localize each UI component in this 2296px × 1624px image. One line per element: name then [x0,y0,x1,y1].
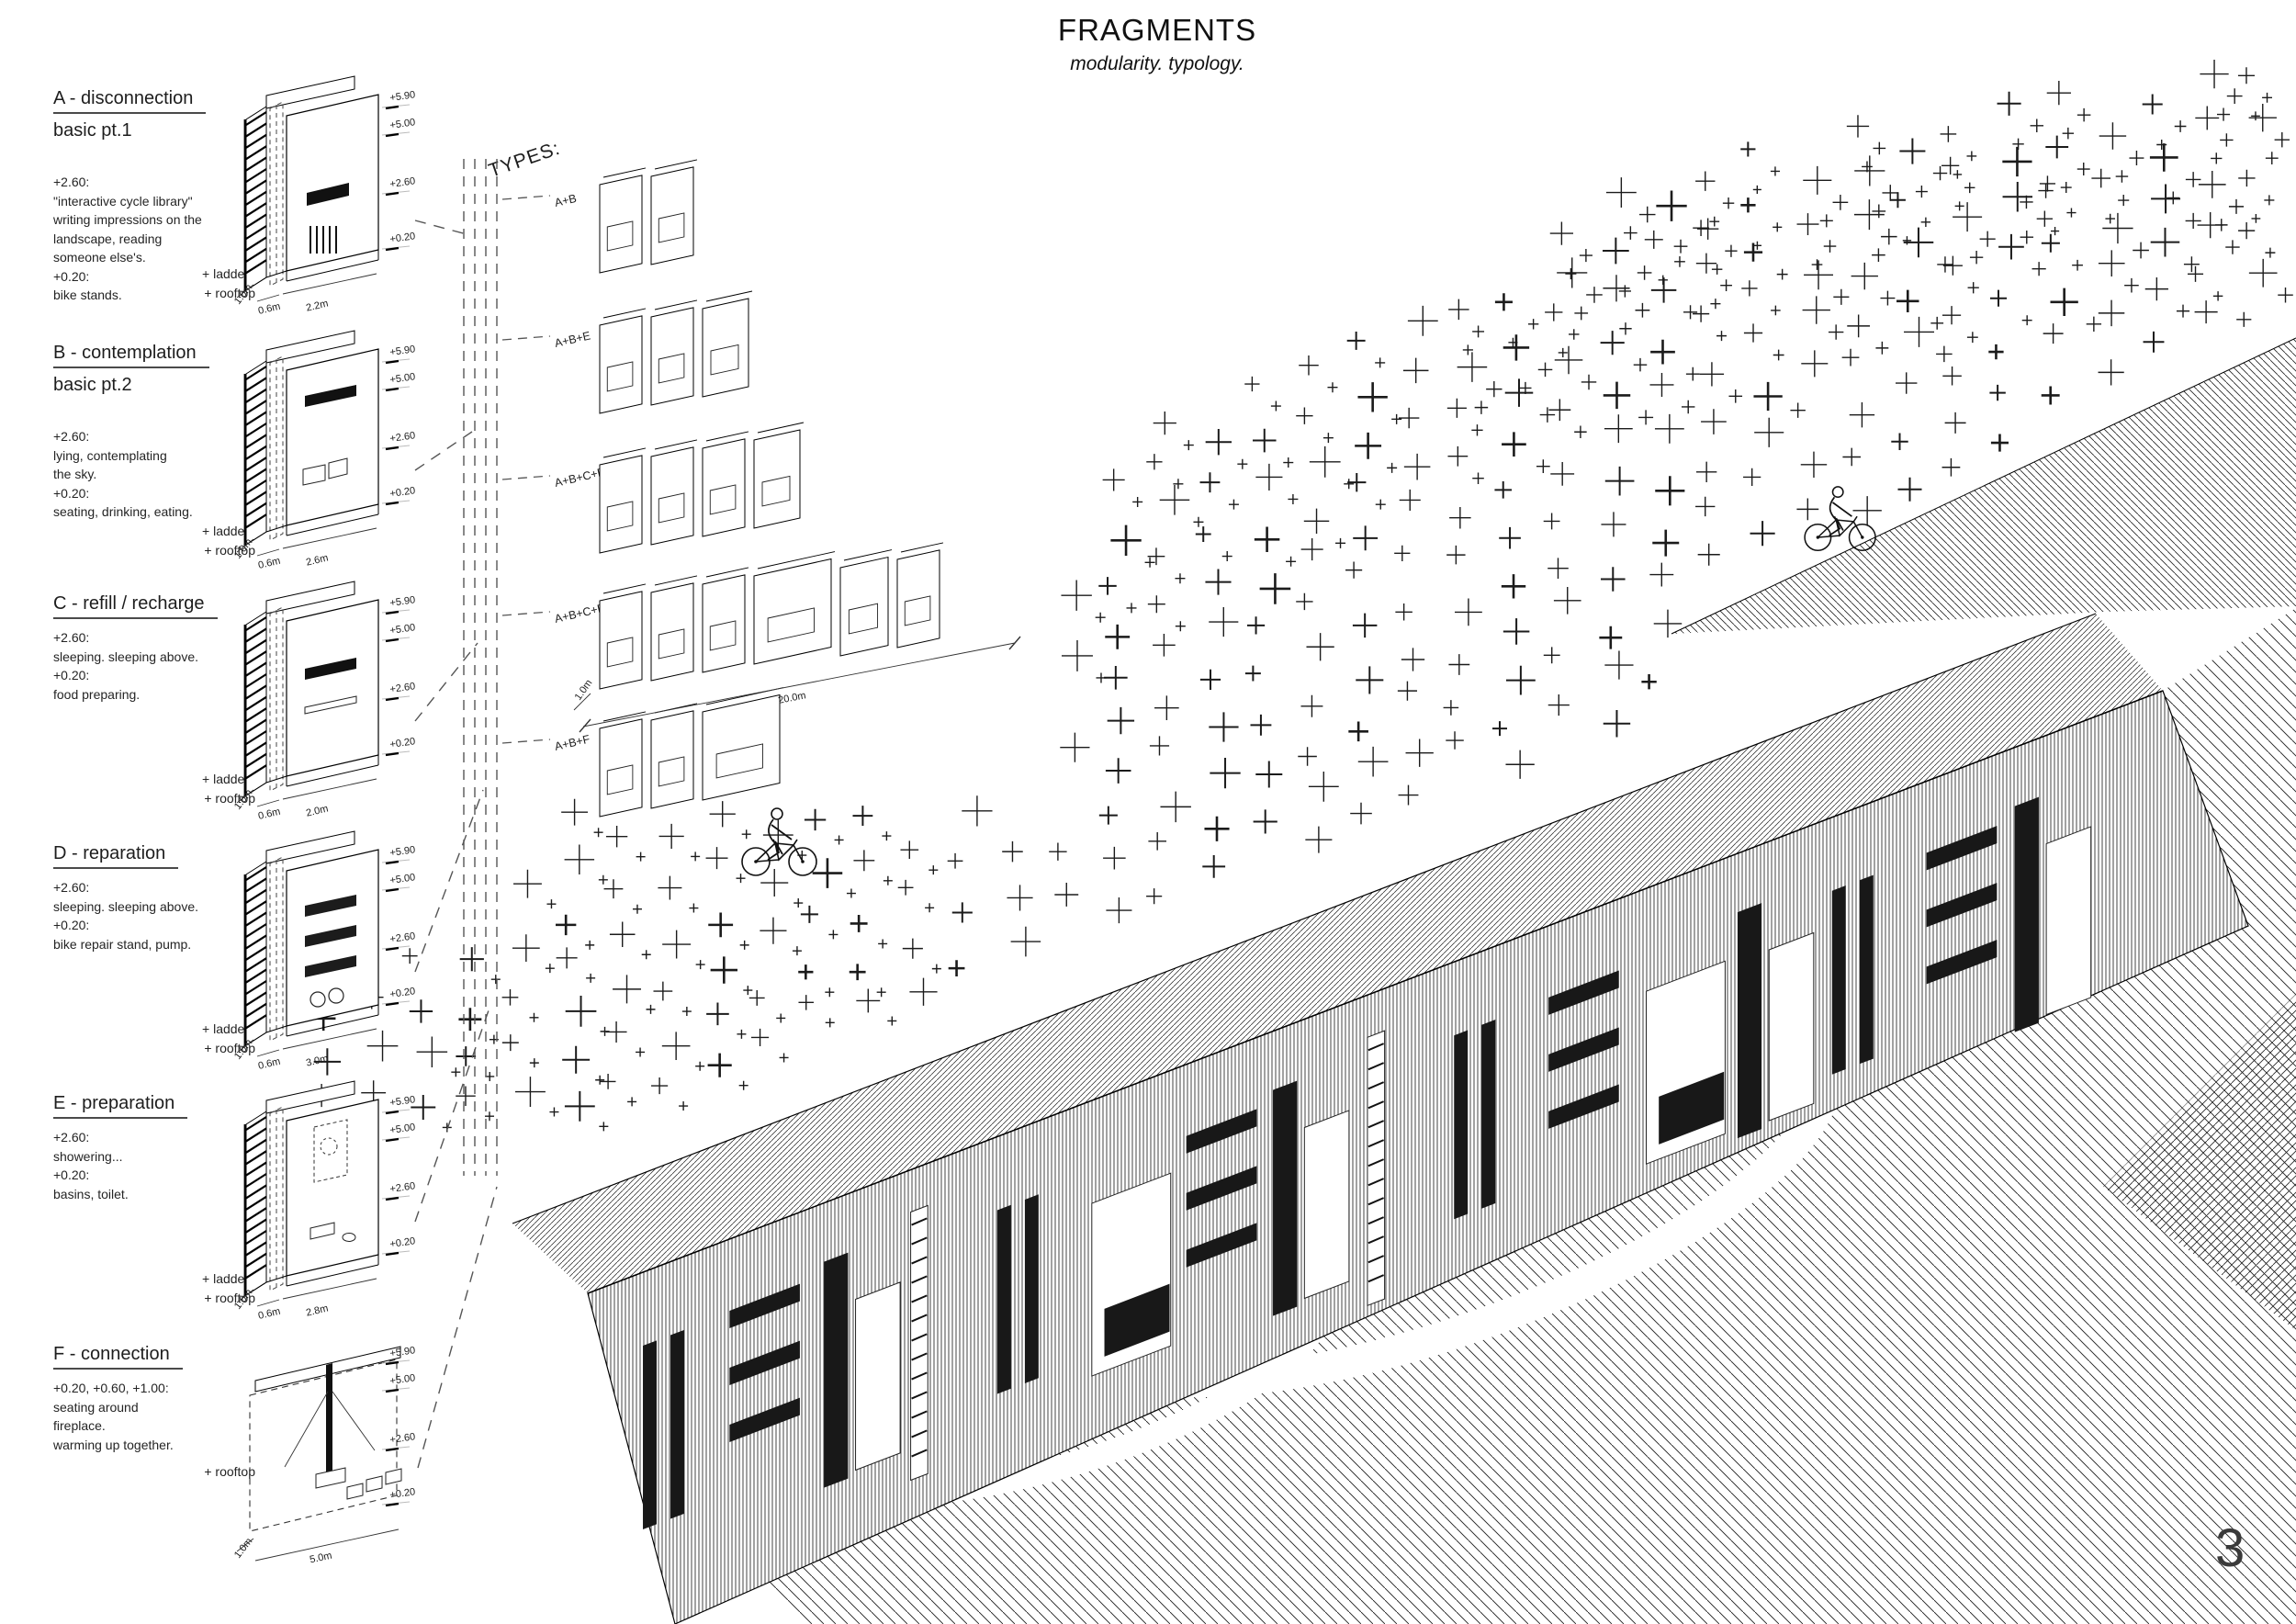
module-description: +2.60:lying, contemplatingthe sky.+0.20:… [53,427,237,522]
type-module-box [703,568,748,672]
module-heading-text: B - contemplation [53,343,209,368]
axon-linework [237,581,410,806]
module-description-line: food preparing. [53,685,237,705]
module-description-line: sleeping. sleeping above. [53,897,237,917]
module-description-line: seating, drinking, eating. [53,502,237,522]
type-combination-label: A+B [554,192,579,209]
module-description-line: the sky. [53,465,237,484]
type-module-box [651,704,697,808]
elevation-label: +5.90 [389,1345,416,1359]
module-axon-drawing: +5.90+5.00+2.60+0.201.0m0.6m2.8m [233,1078,445,1354]
linework [287,95,378,271]
linework [287,600,378,776]
title-block: FRAGMENTS modularity. typology. [872,13,1442,75]
elevation-label: +0.20 [389,736,416,750]
module-description-line: fireplace. [53,1416,237,1436]
presentation-sheet: { "title": { "main": "FRAGMENTS", "subti… [0,0,2296,1624]
elevation-label: +0.20 [389,231,416,245]
type-combination-label: A+B+C+D [554,466,607,490]
dimension-label: 0.6m [257,1056,282,1072]
module-section: B - contemplation basic pt.2 +2.60:lying… [53,343,485,592]
elevation-label: +2.60 [389,430,416,445]
dimension-label: 2.6m [305,552,330,568]
type-module-box [651,440,697,545]
type-module-box [651,160,697,265]
linework [366,1476,382,1492]
dimension-label: 0.6m [257,556,282,571]
module-description-line: warming up together. [53,1436,237,1455]
module-description-line: +0.20: [53,484,237,503]
module-description-line: lying, contemplating [53,446,237,466]
dimension-label: 2.2m [305,298,330,313]
module-description-line: +2.60: [53,1128,237,1147]
type-module-box [651,576,697,681]
module-description: +2.60:sleeping. sleeping above.+0.20:foo… [53,628,237,704]
type-module-box [754,423,804,528]
linework [287,349,378,525]
elevation-label: +2.60 [389,1180,416,1195]
types-diagram: TYPES:A+BA+B+EA+B+C+DA+B+C+D+E+FA+B+F1.0… [445,106,1097,1194]
type-module-box [600,309,646,413]
axon-linework [237,76,410,301]
dimension-label: 20.0m [777,690,806,706]
type-combination-label: A+B+E [554,329,592,350]
elevation-label: +0.20 [389,1235,416,1250]
types-leader [502,476,550,479]
type-module-box [600,584,646,689]
module-description-line: +2.60: [53,878,237,897]
linework [283,779,377,799]
elevation-label: +0.20 [389,485,416,500]
type-module-box [600,712,646,817]
linework [257,1050,279,1056]
elevation-label: +0.20 [389,1486,416,1501]
types-leader [502,196,550,199]
type-module-box [840,550,892,656]
module-section: E - preparation +2.60:showering...+0.20:… [53,1093,485,1343]
elevation-label: +5.00 [389,622,416,637]
module-heading-text: D - reparation [53,843,178,869]
page-subtitle: modularity. typology. [872,53,1442,75]
type-module-box [651,300,697,405]
module-description-line: basins, toilet. [53,1185,237,1204]
module-axon-drawing: +5.90+5.00+2.60+0.201.0m0.6m2.0m [233,579,445,854]
linework [257,1300,279,1306]
type-module-box [897,543,943,648]
module-description-line: +0.20: [53,916,237,935]
type-module-box [703,291,752,397]
module-axon-drawing: +5.90+5.00+2.60+0.201.0m5.0m [233,1329,445,1605]
module-description-line: +0.20: [53,666,237,685]
type-module-box [600,448,646,553]
elevation-label: +5.00 [389,1122,416,1136]
module-description-line: landscape, reading [53,230,237,249]
elevation-label: +0.20 [389,986,416,1000]
axon-linework [237,1081,410,1306]
module-axon-drawing: +5.90+5.00+2.60+0.201.0m0.6m3.0m [233,829,445,1104]
elevation-label: +5.00 [389,1372,416,1387]
linework [347,1483,363,1499]
module-description-line: +0.20, +0.60, +1.00: [53,1379,237,1398]
module-heading-text: E - preparation [53,1093,187,1119]
module-description-line: showering... [53,1147,237,1167]
linework [1009,637,1020,649]
axon-linework [237,1347,410,1561]
type-module-box [703,432,748,536]
elevation-label: +5.90 [389,344,416,358]
axon-linework [237,331,410,556]
module-description: +0.20, +0.60, +1.00:seating aroundfirepl… [53,1379,237,1454]
elevation-label: +2.60 [389,681,416,695]
module-heading-text: C - refill / recharge [53,593,218,619]
module-axon-drawing: +5.90+5.00+2.60+0.201.0m0.6m2.6m [233,328,445,603]
page-number: 3 [2215,1517,2245,1579]
elevation-label: +2.60 [389,175,416,190]
linework [257,800,279,806]
linework [326,1363,332,1474]
module-axon-drawing: +5.90+5.00+2.60+0.201.0m0.6m2.2m [233,73,445,349]
module-section: C - refill / recharge +2.60:sleeping. sl… [53,593,485,843]
linework [583,643,1015,727]
linework [283,274,377,294]
types-leader [502,612,550,615]
type-module-box [703,688,783,800]
module-heading-text: A - disconnection [53,88,206,114]
type-module-box [754,552,835,664]
linework [754,559,831,664]
module-description-line: +2.60: [53,173,237,192]
module-heading-text: F - connection [53,1344,183,1370]
linework [257,295,279,301]
elevation-label: +5.00 [389,371,416,386]
elevation-label: +5.90 [389,1094,416,1109]
type-module-box [600,168,646,273]
module-description-line: +2.60: [53,628,237,648]
dimension-label: 2.0m [305,803,330,818]
dimension-label: 0.6m [257,806,282,822]
linework [287,1100,378,1276]
module-section: F - connection +0.20, +0.60, +1.00:seati… [53,1344,485,1594]
linework [316,1468,345,1488]
elevation-label: +2.60 [389,930,416,945]
elevation-label: +5.00 [389,117,416,131]
module-section: D - reparation +2.60:sleeping. sleeping … [53,843,485,1093]
module-description-line: bike repair stand, pump. [53,935,237,954]
dimension-label: 0.6m [257,1306,282,1322]
linework [283,1029,377,1049]
dimension-label: 1.0m [573,678,595,703]
linework [283,1279,377,1299]
elevation-label: +2.60 [389,1431,416,1446]
elevation-label: +5.90 [389,89,416,104]
elevation-label: +5.00 [389,872,416,886]
linework [703,695,780,800]
elevation-label: +5.90 [389,844,416,859]
dimension-label: 1.0m [232,1536,255,1561]
linework [283,528,377,548]
linework [386,1469,401,1484]
types-leader [502,336,550,340]
module-description-line: writing impressions on the [53,210,237,230]
module-description-line: +0.20: [53,1166,237,1185]
dimension-label: 5.0m [309,1551,332,1566]
axon-linework [237,831,410,1056]
module-description-line: sleeping. sleeping above. [53,648,237,667]
types-leader [502,739,550,743]
linework [257,549,279,556]
elevation-label: +5.90 [389,594,416,609]
module-description: +2.60:showering...+0.20:basins, toilet. [53,1128,237,1203]
module-section: A - disconnection basic pt.1 +2.60:"inte… [53,88,485,338]
module-description: +2.60:sleeping. sleeping above.+0.20:bik… [53,878,237,953]
dimension-label: 2.8m [305,1303,330,1318]
module-description-line: "interactive cycle library" [53,192,237,211]
module-description-line: seating around [53,1398,237,1417]
dimension-label: 0.6m [257,301,282,317]
types-label: TYPES: [486,138,563,182]
dimension-label: 3.0m [305,1053,330,1068]
module-description-line: +2.60: [53,427,237,446]
type-combination-label: A+B+F [554,732,591,752]
page-title: FRAGMENTS [872,13,1442,48]
